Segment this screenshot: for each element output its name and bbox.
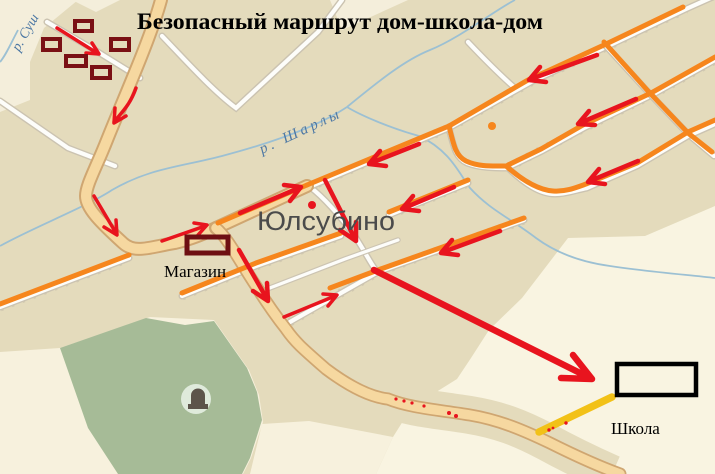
svg-text:Юлсубино: Юлсубино [257,206,395,236]
svg-text:Безопасный маршрут дом-школа-: Безопасный маршрут дом-школа-дом [137,9,543,34]
svg-text:Школа: Школа [611,419,660,438]
svg-text:Магазин: Магазин [164,262,226,281]
